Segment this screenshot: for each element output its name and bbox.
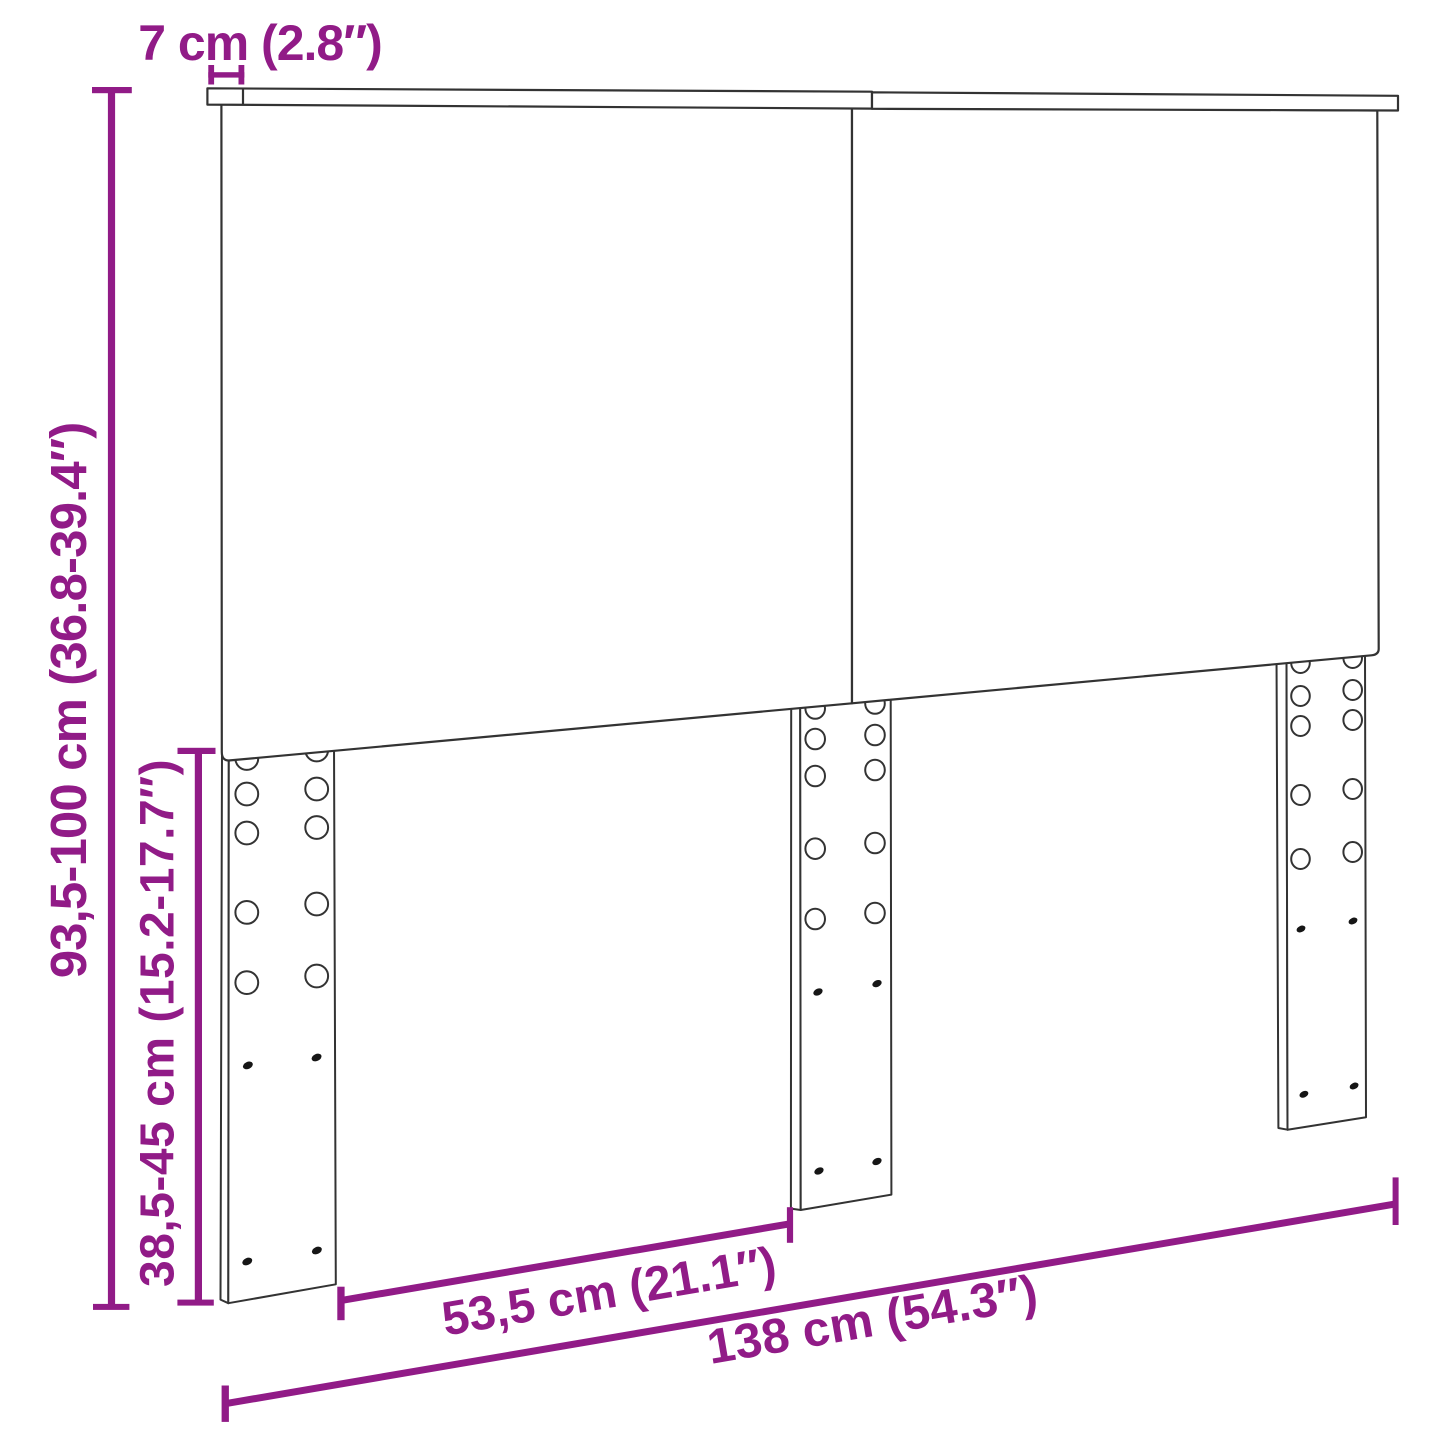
svg-text:38,5-45 cm (15.2-17.7″): 38,5-45 cm (15.2-17.7″) [132,759,185,1287]
svg-text:93,5-100 cm (36.8-39.4″): 93,5-100 cm (36.8-39.4″) [40,423,97,979]
svg-text:7 cm (2.8″): 7 cm (2.8″) [138,15,382,71]
